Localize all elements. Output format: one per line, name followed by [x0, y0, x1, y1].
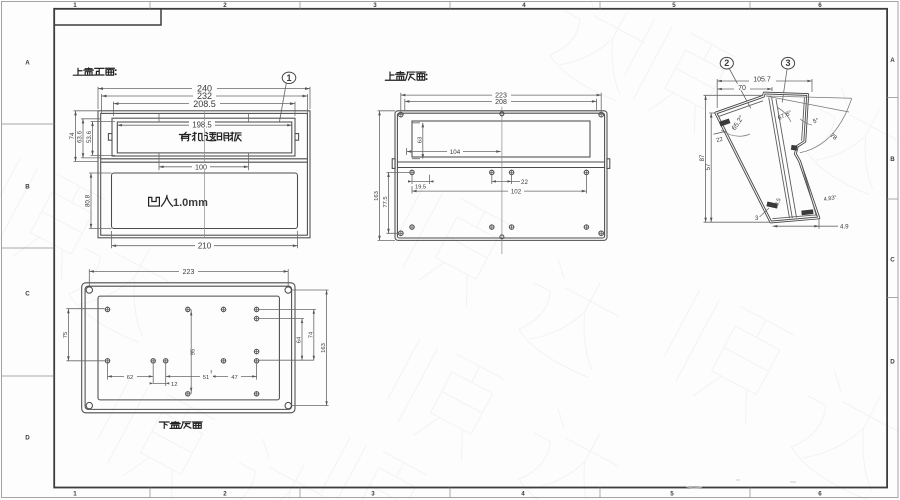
svg-text:1.0mm: 1.0mm	[173, 197, 208, 209]
svg-text:74: 74	[308, 331, 314, 338]
svg-text:19.5: 19.5	[415, 185, 426, 191]
svg-text:53.6: 53.6	[86, 130, 93, 143]
svg-text:104: 104	[450, 149, 461, 156]
svg-text:1: 1	[286, 73, 291, 83]
svg-text:D: D	[890, 359, 895, 366]
svg-text:5: 5	[672, 2, 676, 9]
svg-text:2: 2	[223, 491, 227, 498]
svg-text:B: B	[25, 184, 30, 191]
svg-text:12: 12	[171, 382, 177, 388]
svg-text:100: 100	[195, 162, 207, 171]
svg-text:102: 102	[511, 189, 522, 196]
svg-text:1: 1	[73, 2, 77, 9]
svg-text:198.5: 198.5	[192, 121, 212, 130]
svg-text:163: 163	[321, 343, 327, 353]
svg-text:51: 51	[203, 375, 209, 381]
svg-text:6: 6	[818, 2, 822, 9]
svg-text:75: 75	[63, 332, 69, 338]
svg-text:A: A	[890, 57, 895, 64]
svg-text:57: 57	[706, 163, 712, 170]
svg-text:2: 2	[223, 2, 227, 9]
svg-text:3: 3	[371, 491, 375, 498]
svg-text:64: 64	[297, 336, 303, 343]
svg-text:74: 74	[69, 132, 76, 139]
svg-text:223: 223	[183, 269, 195, 276]
svg-text:3: 3	[373, 2, 377, 9]
svg-text:63: 63	[417, 137, 423, 143]
svg-text:77.5: 77.5	[383, 196, 389, 207]
svg-text:A: A	[25, 60, 30, 67]
svg-text:63.6: 63.6	[77, 130, 84, 143]
svg-text:5: 5	[670, 491, 674, 498]
svg-text:47: 47	[231, 375, 237, 381]
svg-text:6: 6	[818, 491, 822, 498]
svg-text:80.8: 80.8	[85, 194, 92, 207]
svg-text:163: 163	[374, 191, 380, 201]
svg-text:70: 70	[738, 85, 746, 92]
svg-text:4: 4	[522, 2, 526, 9]
svg-text:C: C	[890, 257, 895, 264]
svg-text:C: C	[25, 291, 30, 298]
svg-text:87: 87	[700, 154, 706, 161]
svg-text:105.7: 105.7	[753, 77, 771, 84]
svg-text:4.9: 4.9	[840, 224, 849, 231]
svg-text:D: D	[25, 435, 30, 442]
svg-text:2: 2	[724, 58, 729, 68]
svg-text:208: 208	[495, 99, 507, 106]
svg-text:B: B	[890, 156, 895, 163]
svg-text:95: 95	[191, 349, 197, 355]
svg-text:1: 1	[73, 491, 77, 498]
svg-text:4: 4	[521, 491, 525, 498]
svg-text:210: 210	[198, 242, 212, 251]
svg-text:62: 62	[127, 375, 133, 381]
svg-text:3: 3	[785, 58, 790, 68]
svg-text:208.5: 208.5	[193, 99, 216, 109]
svg-text:22: 22	[521, 179, 528, 186]
